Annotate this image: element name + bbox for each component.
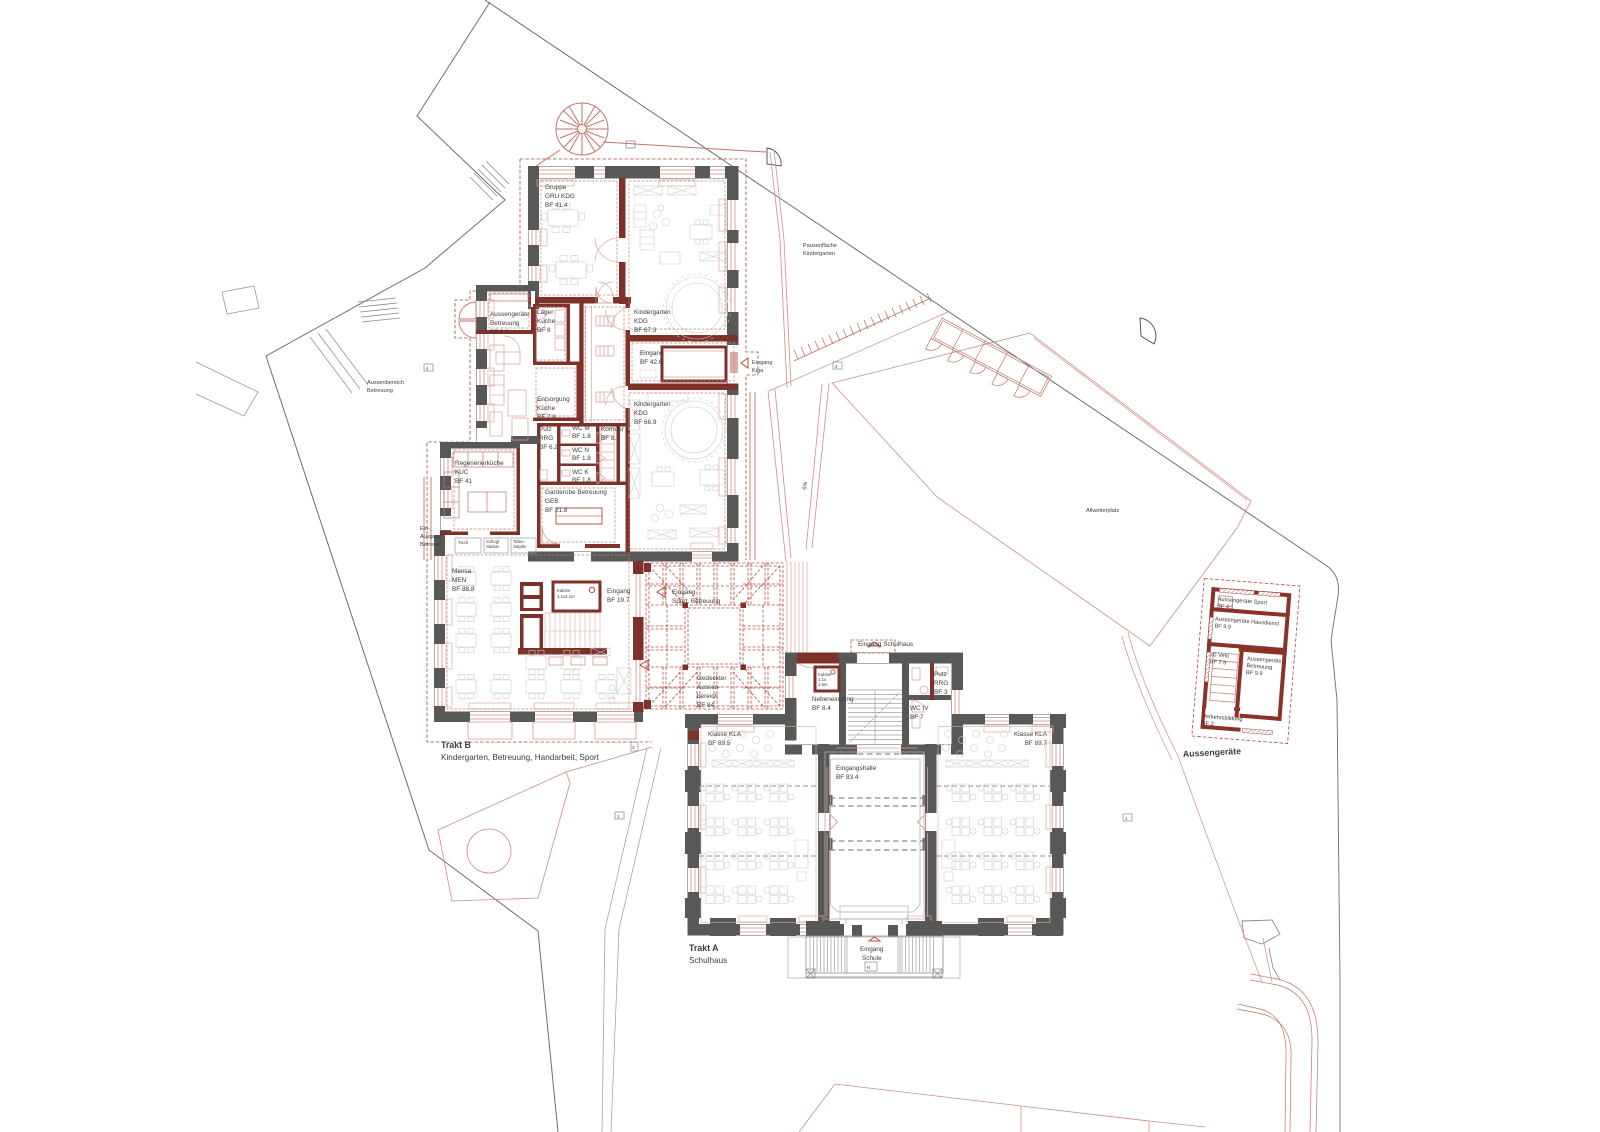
svg-text:Eingang: Eingang xyxy=(860,946,884,953)
svg-text:BF 41.4: BF 41.4 xyxy=(545,202,568,209)
svg-text:Gruppe: Gruppe xyxy=(545,184,567,191)
svg-text:BF 3: BF 3 xyxy=(934,689,948,696)
svg-text:Kindergarten, Betreuung, Handa: Kindergarten, Betreuung, Handarbeit, Spo… xyxy=(441,753,600,762)
svg-text:KUC: KUC xyxy=(455,469,469,476)
svg-text:Allwetterplatz: Allwetterplatz xyxy=(1086,508,1119,514)
svg-text:Kindergarten: Kindergarten xyxy=(803,251,835,257)
svg-text:Gedeckter: Gedeckter xyxy=(697,675,727,682)
svg-text:Korridor: Korridor xyxy=(601,426,625,433)
svg-text:BF 84: BF 84 xyxy=(697,702,714,709)
svg-text:Eingang: Eingang xyxy=(752,360,773,366)
svg-text:BF 66.9: BF 66.9 xyxy=(634,419,657,426)
svg-text:GRU KDG: GRU KDG xyxy=(545,193,575,200)
svg-text:RRG: RRG xyxy=(539,435,553,442)
svg-text:BF 1.8: BF 1.8 xyxy=(572,477,591,484)
svg-text:WC M: WC M xyxy=(572,425,590,432)
svg-text:BF 6.3: BF 6.3 xyxy=(490,329,509,336)
svg-text:KDG: KDG xyxy=(634,410,648,417)
svg-text:Kabine: Kabine xyxy=(557,588,571,593)
svg-text:BF 88.8: BF 88.8 xyxy=(452,586,475,593)
svg-text:Pausenfläche: Pausenfläche xyxy=(803,243,837,249)
svg-text:BF 19.7: BF 19.7 xyxy=(607,597,630,604)
svg-text:Mensa: Mensa xyxy=(452,568,472,575)
svg-text:Klasse KLA: Klasse KLA xyxy=(708,731,742,738)
svg-text:BF 7: BF 7 xyxy=(910,714,924,721)
svg-text:Eingang Schulhaus: Eingang Schulhaus xyxy=(858,641,913,648)
svg-text:KDG: KDG xyxy=(634,318,648,325)
svg-text:Küche: Küche xyxy=(537,318,556,325)
svg-text:GEB: GEB xyxy=(545,498,559,505)
svg-text:Kindergarten: Kindergarten xyxy=(634,309,671,316)
svg-text:Putz: Putz xyxy=(934,671,947,678)
svg-text:WC K: WC K xyxy=(572,469,589,476)
svg-text:Kindergarten: Kindergarten xyxy=(634,401,671,408)
svg-text:Eingang: Eingang xyxy=(640,350,664,357)
svg-text:BF 89.5: BF 89.5 xyxy=(708,740,731,747)
svg-text:Eingang: Eingang xyxy=(607,588,631,595)
svg-text:Schulhaus: Schulhaus xyxy=(689,956,727,965)
svg-text:Betreuung: Betreuung xyxy=(490,320,520,327)
svg-text:Nebeneingang: Nebeneingang xyxy=(812,696,854,703)
svg-text:BF 67.3: BF 67.3 xyxy=(634,327,657,334)
svg-text:Ein-,: Ein-, xyxy=(420,526,432,532)
svg-text:Eingangshalle: Eingangshalle xyxy=(836,765,877,772)
svg-text:BF 41: BF 41 xyxy=(455,478,472,485)
svg-text:BF 1.8: BF 1.8 xyxy=(572,455,591,462)
svg-text:BF 8.3: BF 8.3 xyxy=(601,435,620,442)
svg-text:Klasse KLA: Klasse KLA xyxy=(1014,731,1048,738)
svg-text:Betreuer: Betreuer xyxy=(420,542,442,548)
svg-text:Station: Station xyxy=(486,544,500,549)
svg-text:BF 89.7: BF 89.7 xyxy=(1025,740,1048,747)
svg-text:Putz: Putz xyxy=(539,426,552,433)
svg-text:BF 8: BF 8 xyxy=(537,327,551,334)
svg-text:Ausgang: Ausgang xyxy=(420,534,442,540)
svg-text:Aussen-: Aussen- xyxy=(697,684,720,691)
svg-text:Kiga: Kiga xyxy=(752,368,764,374)
svg-text:bereich: bereich xyxy=(697,693,718,700)
svg-text:Betreuung: Betreuung xyxy=(367,388,393,394)
svg-text:Garderobe Betreuung: Garderobe Betreuung xyxy=(545,489,607,496)
svg-text:Trakt A: Trakt A xyxy=(689,943,719,953)
svg-text:WC N: WC N xyxy=(572,447,589,454)
svg-text:Schule: Schule xyxy=(862,955,882,962)
svg-text:Sport, Betreuung: Sport, Betreuung xyxy=(672,598,721,605)
svg-text:Stapler: Stapler xyxy=(513,544,527,549)
svg-text:1.1x2.1m: 1.1x2.1m xyxy=(557,594,575,599)
svg-text:BF 2: BF 2 xyxy=(1202,721,1214,728)
svg-text:Tisch: Tisch xyxy=(458,540,469,545)
svg-text:BF 21.8: BF 21.8 xyxy=(545,507,568,514)
svg-text:Lager: Lager xyxy=(537,309,554,316)
svg-text:BF 6.2: BF 6.2 xyxy=(539,444,558,451)
svg-text:Entsorgung: Entsorgung xyxy=(537,396,570,403)
svg-text:N: N xyxy=(867,965,870,970)
svg-text:WC IV: WC IV xyxy=(910,705,929,712)
svg-text:BF 7.8: BF 7.8 xyxy=(537,414,556,421)
svg-text:Küche: Küche xyxy=(537,405,556,412)
svg-text:BF 42.6: BF 42.6 xyxy=(640,359,663,366)
svg-text:Trakt B: Trakt B xyxy=(441,740,471,750)
svg-text:BF 83.4: BF 83.4 xyxy=(836,774,859,781)
svg-text:Aussenbereich: Aussenbereich xyxy=(367,380,404,386)
svg-text:Regenerierküche: Regenerierküche xyxy=(455,460,504,467)
svg-text:BF 8.4: BF 8.4 xyxy=(812,705,831,712)
svg-text:BF 1.8: BF 1.8 xyxy=(572,433,591,440)
svg-text:Eingang: Eingang xyxy=(672,589,696,596)
svg-text:1.6m: 1.6m xyxy=(818,682,828,687)
svg-text:MEN: MEN xyxy=(452,577,467,584)
svg-text:Aussengeräte: Aussengeräte xyxy=(490,311,530,318)
svg-text:RRG: RRG xyxy=(934,680,948,687)
